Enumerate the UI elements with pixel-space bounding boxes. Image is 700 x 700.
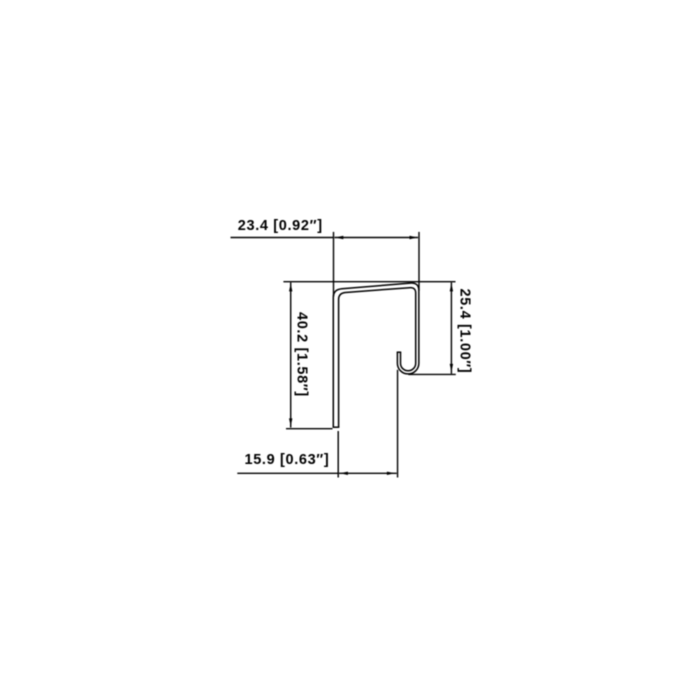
svg-text:15.9 [0.63″]: 15.9 [0.63″] [245,452,330,468]
svg-text:40.2 [1.58″]: 40.2 [1.58″] [293,312,309,397]
svg-text:23.4 [0.92″]: 23.4 [0.92″] [238,218,323,234]
svg-text:25.4 [1.00″]: 25.4 [1.00″] [456,289,472,374]
